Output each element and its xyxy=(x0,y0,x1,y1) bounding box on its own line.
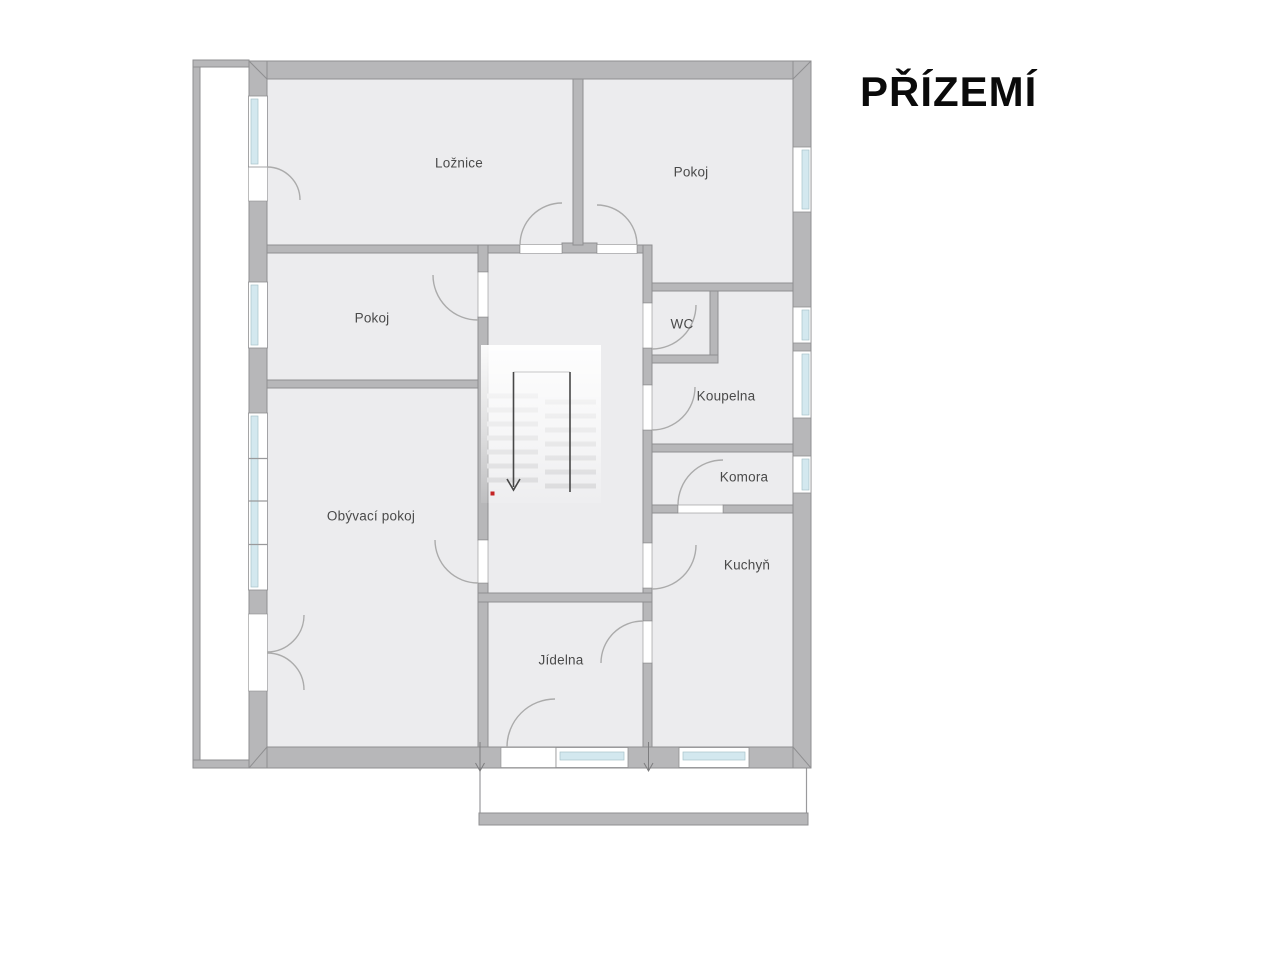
wall-hall-west-a xyxy=(478,245,488,272)
door-gap-pokoj-left xyxy=(478,272,488,317)
wall-hall-east-b xyxy=(643,348,652,385)
door-gap-kuchyn xyxy=(643,543,652,588)
door-gap-pokoj-top xyxy=(597,245,637,254)
room-label-jidelna: Jídelna xyxy=(539,653,584,668)
wall-komora-kuchyn-b xyxy=(723,505,793,513)
door-gap-terrace xyxy=(501,748,556,768)
red-reference-dot xyxy=(491,492,495,496)
floor-plan-page: Ložnice Pokoj Pokoj WC Koupelna Komora O… xyxy=(0,0,1280,959)
porch-bottom-cap xyxy=(193,760,249,768)
porch-strip xyxy=(193,60,249,768)
wall-kuchyn-west xyxy=(643,663,652,747)
room-label-loznice: Ložnice xyxy=(435,156,483,171)
door-gap-loznice xyxy=(520,245,562,254)
wall-koupelna-komora xyxy=(652,444,793,452)
exterior-wall-top xyxy=(249,61,811,79)
porch-top-cap xyxy=(193,60,249,67)
wall-hall-south xyxy=(478,593,652,602)
room-label-wc: WC xyxy=(671,317,694,332)
door-gap-french xyxy=(249,614,268,691)
window-koupelna-small xyxy=(793,307,811,343)
wall-wc-south xyxy=(652,355,718,363)
window-komora xyxy=(793,456,811,493)
room-label-obyvaci: Obývací pokoj xyxy=(327,509,415,524)
room-label-komora: Komora xyxy=(720,470,768,485)
terrace xyxy=(479,768,808,825)
room-label-pokoj-top: Pokoj xyxy=(674,165,709,180)
door-gap-wc xyxy=(643,303,652,348)
page-title: PŘÍZEMÍ xyxy=(860,68,1037,116)
window-kuchyn xyxy=(679,748,749,768)
staircase xyxy=(481,345,601,503)
wall-wc-east xyxy=(710,291,718,363)
window-jidelna xyxy=(556,748,628,768)
window-pokoj-top xyxy=(793,147,811,212)
door-gap-komora xyxy=(678,505,723,513)
door-gap-kuchyn-jidelna xyxy=(643,621,652,663)
wall-jidelna-west xyxy=(478,583,488,747)
window-obyvaci xyxy=(249,413,268,590)
terrace-step xyxy=(479,813,808,825)
wall-hall-east-a xyxy=(643,245,652,303)
wall-loznice-pokoj-divider xyxy=(573,79,583,245)
room-label-kuchyn: Kuchyň xyxy=(724,558,770,573)
door-gap-entry xyxy=(249,166,268,201)
window-loznice xyxy=(249,96,268,167)
wall-komora-kuchyn-a xyxy=(652,505,678,513)
door-gap-koupelna xyxy=(643,385,652,430)
wall-hall-east-c xyxy=(643,430,652,543)
wall-pokoj-top-south xyxy=(652,283,793,291)
window-pokoj-left xyxy=(249,282,268,348)
room-label-pokoj-left: Pokoj xyxy=(355,311,390,326)
window-koupelna-large xyxy=(793,351,811,418)
room-label-koupelna: Koupelna xyxy=(697,389,756,404)
wall-pokoj-obyvaci xyxy=(267,380,478,388)
door-gap-obyvaci xyxy=(478,540,488,583)
porch-left-edge xyxy=(193,60,200,768)
floor-plan-drawing xyxy=(0,0,1280,959)
stair-fade-overlay xyxy=(481,345,601,503)
